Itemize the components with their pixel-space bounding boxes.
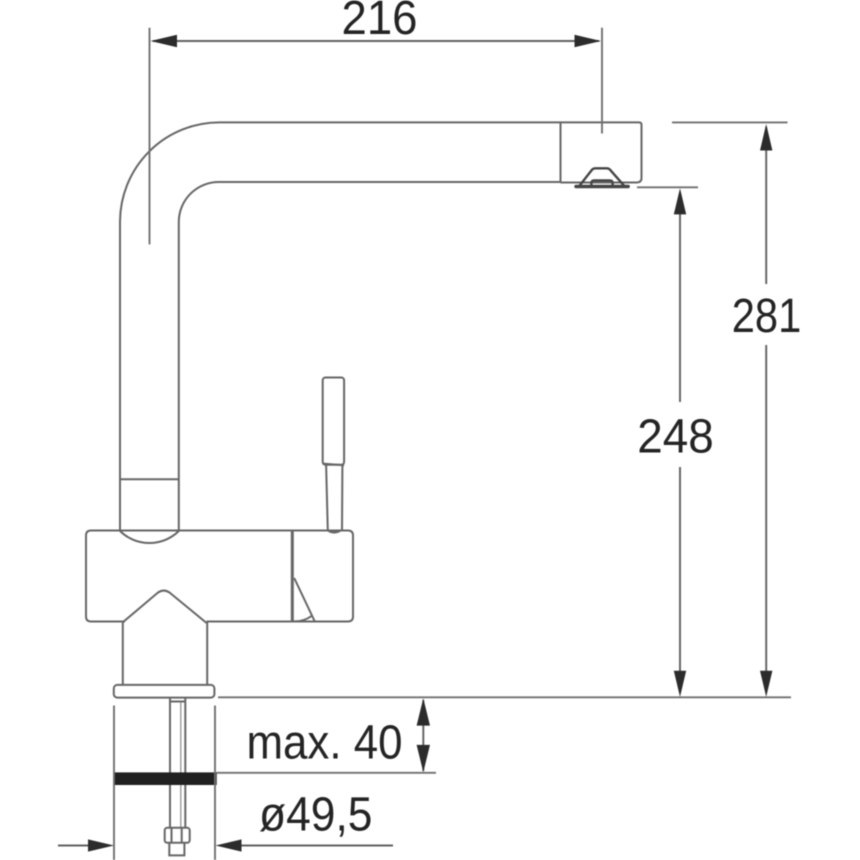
svg-text:248: 248 — [637, 411, 714, 464]
svg-text:281: 281 — [732, 290, 802, 343]
svg-text:max. 40: max. 40 — [247, 717, 403, 770]
svg-text:216: 216 — [342, 0, 418, 45]
svg-text:ø49,5: ø49,5 — [259, 789, 373, 842]
